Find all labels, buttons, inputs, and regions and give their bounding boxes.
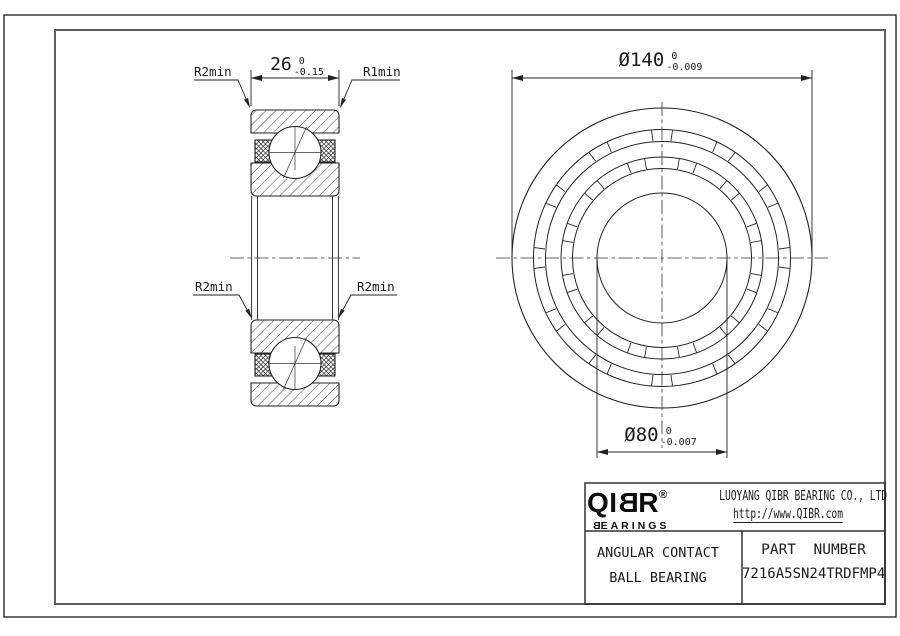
outer-diameter-tolerance-lower: -0.009	[666, 62, 702, 73]
logo-subtitle-b-mirrored: B	[590, 520, 601, 532]
bearing-front-view	[496, 102, 828, 448]
outer-diameter-tolerance-upper: 0	[666, 51, 702, 62]
drawing-linework	[0, 0, 900, 636]
outer-diameter-value: Ø140	[619, 51, 665, 70]
logo-letter-b-mirrored: B	[618, 489, 639, 517]
part-number-value: 7216A5SN24TRDFMP4	[742, 566, 885, 582]
engineering-drawing-page: R2min R1min R2min R2min 26 0 -0.15 Ø140 …	[0, 0, 900, 636]
registered-trademark-icon: ®	[659, 489, 668, 501]
leader-r2min-top-left	[194, 80, 249, 107]
width-tolerance-upper: 0	[294, 56, 324, 67]
company-info: LUOYANG QIBR BEARING CO., LTD http://www…	[719, 488, 857, 524]
radius-label-mid-left: R2min	[195, 279, 233, 294]
width-value: 26	[270, 56, 292, 74]
leader-r1min-top-right	[341, 80, 400, 107]
logo-letter-q: Q	[587, 487, 609, 518]
product-name-line2: BALL BEARING	[585, 570, 731, 586]
section-top-half	[251, 110, 339, 196]
part-number-label: PART NUMBER	[742, 542, 885, 558]
bore-diameter-tolerance-lower: -0.007	[661, 437, 697, 448]
company-name: LUOYANG QIBR BEARING CO., LTD	[719, 488, 857, 506]
logo-letter-i: I	[609, 487, 617, 518]
bore-diameter-dimension-text: Ø80 0 -0.007	[588, 426, 733, 448]
company-website-link[interactable]: http://www.QIBR.com	[733, 507, 843, 523]
logo-subtitle: BEARINGS	[590, 520, 669, 532]
company-logo: QIBR® BEARINGS	[587, 489, 669, 532]
section-bottom-half	[251, 320, 339, 406]
radius-label-mid-right: R2min	[357, 279, 395, 294]
bearing-section-view	[230, 110, 360, 406]
product-name-line1: ANGULAR CONTACT	[585, 545, 731, 561]
width-tolerance: 0 -0.15	[294, 56, 324, 78]
width-tolerance-lower: -0.15	[294, 67, 324, 78]
leader-r2min-mid-left	[193, 295, 251, 318]
radius-label-top-left: R2min	[194, 64, 232, 79]
front-view-centerlines	[496, 102, 828, 448]
logo-letter-r: R	[638, 487, 659, 518]
bore-diameter-tolerance-upper: 0	[661, 426, 697, 437]
logo-subtitle-rest: EARINGS	[601, 520, 670, 532]
leader-r2min-mid-right	[339, 295, 397, 318]
outer-border-frame	[4, 15, 896, 617]
radius-label-top-right: R1min	[363, 64, 401, 79]
bore-diameter-tolerance: 0 -0.007	[661, 426, 697, 448]
outer-diameter-dimension-text: Ø140 0 -0.009	[588, 51, 733, 73]
outer-diameter-tolerance: 0 -0.009	[666, 51, 702, 73]
width-dimension-text: 26 0 -0.15	[253, 56, 341, 78]
logo-wordmark: QIBR®	[587, 489, 669, 517]
bore-diameter-value: Ø80	[624, 426, 658, 445]
